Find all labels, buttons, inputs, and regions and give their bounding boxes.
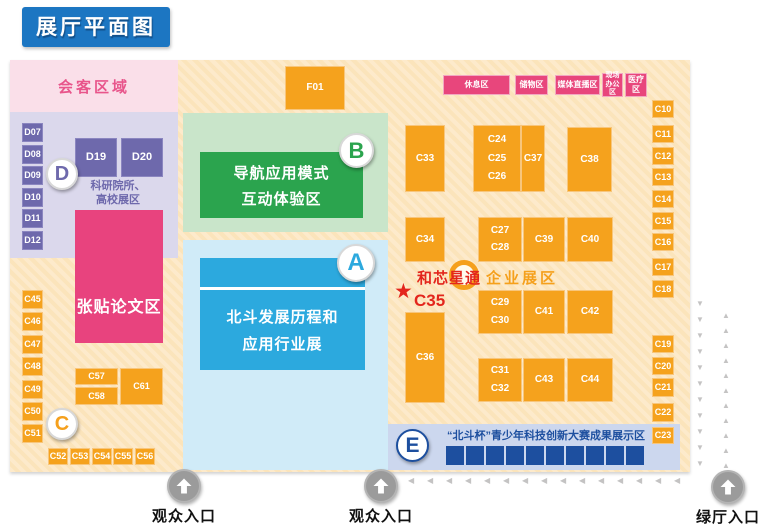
zone-reception-label: 会客区域 [58, 76, 130, 97]
booth-C50: C50 [22, 402, 43, 421]
booth-label: C48 [24, 362, 41, 371]
facility-box: 休息区 [443, 75, 510, 95]
booth-C23: C23 [652, 427, 674, 444]
facility-box: 储物区 [515, 75, 548, 95]
e-booth-square [506, 446, 524, 465]
zone-b-box: 导航应用模式 互动体验区 [200, 152, 363, 218]
booth-C57: C57 [75, 368, 118, 385]
booth-C53: C53 [70, 448, 90, 465]
booth-label: C22 [655, 408, 672, 417]
booth-label: C34 [416, 235, 434, 245]
booth-C47: C47 [22, 335, 43, 354]
booth-label: C10 [655, 105, 672, 114]
trail-arrow-icon: ▼ [696, 332, 704, 340]
trail-arrow-icon: ◀ [598, 477, 604, 485]
booth-label: C47 [24, 340, 41, 349]
booth-C16: C16 [652, 233, 674, 251]
booth-C29-C30: C29C30 [478, 290, 522, 334]
trail-arrow-icon: ▼ [696, 444, 704, 452]
badge-a: A [337, 244, 375, 282]
booth-label: D09 [24, 171, 41, 180]
booth-label: C50 [24, 407, 41, 416]
booth-C21: C21 [652, 378, 674, 397]
booth-label: C45 [24, 295, 41, 304]
trail-arrow-icon: ◀ [484, 477, 490, 485]
zone-poster: 张贴论文区 [75, 210, 163, 343]
booth-C36: C36 [405, 312, 445, 403]
booth-C51: C51 [22, 424, 43, 443]
e-booth-square [446, 446, 464, 465]
trail-arrow-icon: ◀ [560, 477, 566, 485]
booth-label: D19 [86, 152, 106, 163]
trail-arrow-icon: ▲ [722, 357, 730, 365]
booth-label: C16 [655, 238, 672, 247]
booth-label: C33 [416, 154, 434, 164]
booth-label: C25 [488, 154, 506, 164]
e-booth-square [486, 446, 504, 465]
booth-label: C11 [655, 130, 671, 139]
trail-arrow-icon: ◀ [427, 477, 433, 485]
trail-arrow-icon: ▲ [722, 342, 730, 350]
booth-C14: C14 [652, 190, 674, 208]
booth-C27-C28: C27C28 [478, 217, 522, 262]
trail-arrow-icon: ▲ [722, 327, 730, 335]
booth-C56: C56 [135, 448, 155, 465]
booth-C18: C18 [652, 280, 674, 298]
booth-label: C54 [94, 452, 111, 461]
booth-label: D10 [24, 193, 41, 202]
trail-arrow-icon: ▲ [722, 432, 730, 440]
e-booth-square [626, 446, 644, 465]
booth-label: C56 [137, 452, 154, 461]
booth-C38: C38 [567, 127, 612, 192]
booth-label: C12 [655, 152, 672, 161]
booth-label: C13 [655, 173, 672, 182]
page-title: 展厅平面图 [22, 7, 170, 47]
trail-arrow-icon: ▼ [696, 412, 704, 420]
booth-label: C19 [655, 340, 672, 349]
booth-C33: C33 [405, 125, 445, 192]
booth-C15: C15 [652, 212, 674, 230]
booth-label: C20 [655, 362, 672, 371]
booth-label: C61 [133, 382, 150, 391]
booth-C40: C40 [567, 217, 613, 262]
up-arrow-icon [174, 476, 194, 496]
e-booth-square [546, 446, 564, 465]
booth-label: F01 [306, 83, 323, 93]
trail-arrow-icon: ▼ [696, 316, 704, 324]
booth-C20: C20 [652, 357, 674, 375]
booth-label: C36 [416, 353, 434, 363]
trail-arrow-icon: ▲ [722, 387, 730, 395]
booth-C41: C41 [523, 290, 565, 334]
booth-label: C24 [488, 135, 506, 145]
booth-label: C57 [88, 372, 105, 381]
booth-label: C43 [535, 375, 553, 385]
booth-label: C46 [24, 317, 41, 326]
booth-D12: D12 [22, 231, 43, 250]
booth-C22: C22 [652, 403, 674, 422]
zone-e-booth-row [446, 446, 644, 465]
e-booth-square [526, 446, 544, 465]
unicore-name: 和芯星通 [417, 267, 481, 288]
booth-C58: C58 [75, 387, 118, 405]
facility-box: 医疗区 [625, 73, 647, 97]
booth-label: C29 [491, 298, 509, 308]
trail-arrow-icon: ◀ [579, 477, 585, 485]
zone-reception: 会客区域 [10, 60, 178, 112]
trail-arrow-icon: ◀ [503, 477, 509, 485]
booth-C55: C55 [113, 448, 133, 465]
zone-poster-label: 张贴论文区 [76, 293, 161, 317]
badge-c: C [46, 408, 78, 440]
trail-arrow-icon: ◀ [541, 477, 547, 485]
entrance-label: 观众入口 [336, 505, 426, 526]
up-arrow-icon [718, 477, 738, 497]
booth-C10: C10 [652, 100, 674, 118]
booth-label: C31 [491, 366, 509, 376]
booth-label: D11 [24, 214, 40, 223]
trail-arrow-icon: ◀ [408, 477, 414, 485]
trail-arrow-icon: ◀ [465, 477, 471, 485]
zone-b-line2: 互动体验区 [241, 188, 321, 209]
booth-C37: C37 [521, 125, 545, 192]
booth-label: C15 [655, 217, 672, 226]
entrance-arrow-icon [711, 470, 745, 504]
facility-box: 现场 办公区 [602, 73, 623, 97]
booth-D07: D07 [22, 123, 43, 142]
trail-arrow-icon: ▼ [696, 300, 704, 308]
entrance-arrow-icon [167, 469, 201, 503]
booth-label: C53 [72, 452, 89, 461]
booth-D09: D09 [22, 166, 43, 185]
booth-label: C38 [580, 155, 598, 165]
booth-C39: C39 [523, 217, 565, 262]
facility-box: 媒体直播区 [555, 75, 600, 95]
trail-arrow-icon: ▲ [722, 312, 730, 320]
trail-arrow-icon: ▲ [722, 462, 730, 470]
booth-C11: C11 [652, 125, 674, 143]
trail-arrow-icon: ◀ [674, 477, 680, 485]
booth-D20: D20 [121, 138, 163, 177]
booth-C46: C46 [22, 312, 43, 331]
booth-label: C44 [581, 375, 599, 385]
booth-label: C41 [535, 307, 553, 317]
trail-arrow-icon: ▲ [722, 417, 730, 425]
badge-d: D [46, 158, 78, 190]
zone-enterprise-label: 企业展区 [486, 267, 558, 288]
zone-research-label: 科研院所、 高校展区 [86, 180, 150, 208]
badge-e: E [396, 429, 429, 462]
e-booth-square [586, 446, 604, 465]
badge-b: B [339, 133, 374, 168]
booth-label: C49 [24, 385, 41, 394]
zone-a-line2: 应用行业展 [242, 333, 322, 354]
booth-label: C17 [655, 263, 672, 272]
trail-arrow-icon: ▼ [696, 460, 704, 468]
trail-arrow-icon: ▲ [722, 402, 730, 410]
booth-label: C26 [488, 172, 506, 182]
trail-arrow-icon: ▼ [696, 396, 704, 404]
trail-arrow-icon: ▼ [696, 380, 704, 388]
booth-C49: C49 [22, 380, 43, 399]
booth-D19: D19 [75, 138, 117, 177]
booth-C61: C61 [120, 368, 163, 405]
booth-label: C30 [491, 316, 509, 326]
floor-plan: 展厅平面图 会客区域 导航应用模式 互动体验区 北斗发展历程和 应用行业展 张贴… [0, 0, 768, 530]
zone-a-line1: 北斗发展历程和 [226, 306, 338, 327]
booth-label: D12 [24, 236, 41, 245]
zone-e-label: “北斗杯”青少年科技创新大赛成果展示区 [437, 427, 655, 443]
trail-arrow-icon: ◀ [617, 477, 623, 485]
star-icon: ★ [394, 281, 413, 302]
booth-F01: F01 [285, 66, 345, 110]
booth-C13: C13 [652, 168, 674, 186]
trail-arrow-icon: ◀ [522, 477, 528, 485]
unicore-booth-number: C35 [414, 291, 445, 311]
booth-label: C28 [491, 243, 509, 253]
trail-arrow-icon: ▼ [696, 348, 704, 356]
booth-label: C27 [491, 226, 509, 236]
booth-C12: C12 [652, 147, 674, 165]
booth-C52: C52 [48, 448, 68, 465]
trail-arrow-icon: ◀ [636, 477, 642, 485]
booth-C44: C44 [567, 358, 613, 402]
e-booth-square [466, 446, 484, 465]
booth-label: C37 [524, 154, 542, 164]
e-booth-square [606, 446, 624, 465]
booth-C24-C25-C26: C24C25C26 [473, 125, 521, 192]
booth-label: C39 [535, 235, 553, 245]
booth-label: D20 [132, 152, 152, 163]
booth-C31-C32: C31C32 [478, 358, 522, 402]
trail-arrow-icon: ▼ [696, 364, 704, 372]
entrance-label: 观众入口 [139, 505, 229, 526]
booth-label: C58 [88, 392, 105, 401]
booth-D08: D08 [22, 145, 43, 164]
entrance-arrow-icon [364, 469, 398, 503]
booth-C54: C54 [92, 448, 112, 465]
booth-label: C40 [581, 235, 599, 245]
e-booth-square [566, 446, 584, 465]
trail-arrow-icon: ▼ [696, 428, 704, 436]
booth-label: C52 [50, 452, 67, 461]
booth-label: C55 [115, 452, 132, 461]
up-arrow-icon [371, 476, 391, 496]
booth-C19: C19 [652, 335, 674, 353]
trail-arrow-icon: ◀ [655, 477, 661, 485]
booth-label: C21 [655, 383, 672, 392]
booth-label: C23 [655, 431, 672, 440]
zone-b-line1: 导航应用模式 [233, 162, 329, 183]
booth-C48: C48 [22, 357, 43, 376]
trail-arrow-icon: ▲ [722, 372, 730, 380]
booth-C45: C45 [22, 290, 43, 309]
booth-D11: D11 [22, 209, 43, 228]
booth-label: C18 [655, 285, 672, 294]
booth-label: C42 [581, 307, 599, 317]
booth-C17: C17 [652, 258, 674, 276]
trail-arrow-icon: ◀ [446, 477, 452, 485]
booth-label: C14 [655, 195, 672, 204]
booth-label: D07 [24, 128, 41, 137]
booth-label: C32 [491, 384, 509, 394]
entrance-label: 绿厅入口 [683, 506, 768, 527]
trail-arrow-icon: ▲ [722, 447, 730, 455]
booth-C43: C43 [523, 358, 565, 402]
booth-label: D08 [24, 150, 41, 159]
booth-C34: C34 [405, 217, 445, 262]
booth-D10: D10 [22, 188, 43, 207]
booth-C42: C42 [567, 290, 613, 334]
booth-label: C51 [24, 429, 41, 438]
